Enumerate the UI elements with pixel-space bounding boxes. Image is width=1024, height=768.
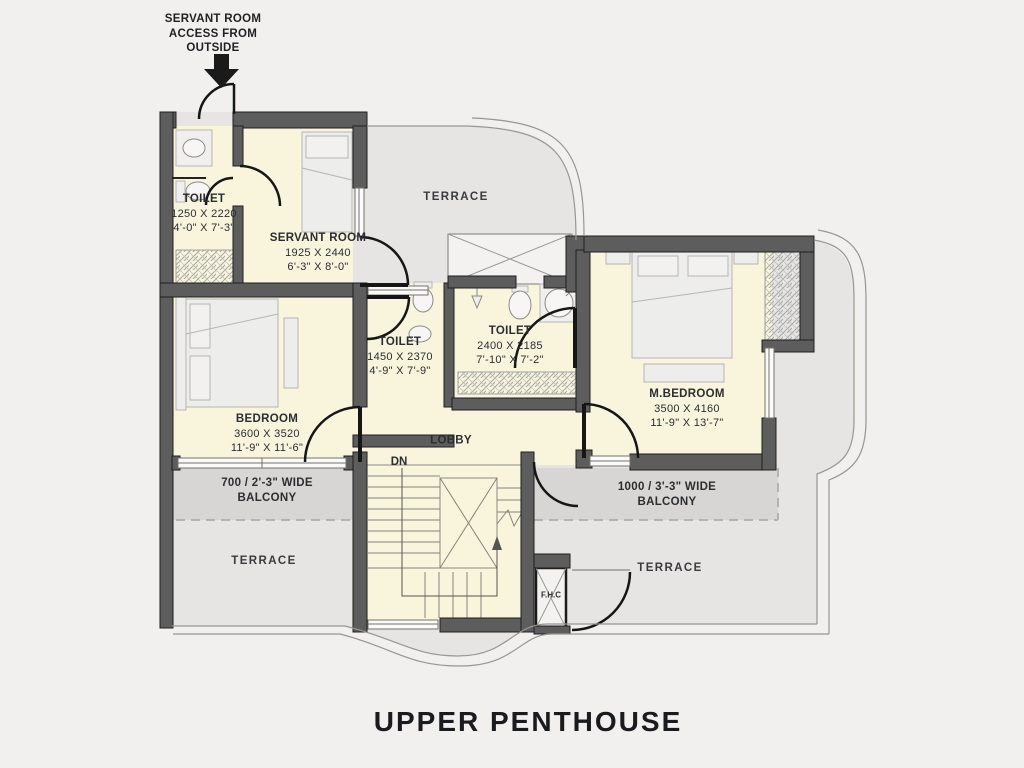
room-name: SERVANT ROOM — [270, 231, 366, 246]
room-dim-mm: 2400 X 2185 — [476, 339, 544, 353]
room-name: LOBBY — [430, 434, 472, 449]
annotation-line3: OUTSIDE — [165, 41, 261, 56]
balcony-left-label: 700 / 2'-3" WIDE BALCONY — [221, 476, 313, 506]
room-label-master-bedroom: M.BEDROOM 3500 X 4160 11'-9" X 13'-7" — [649, 387, 725, 431]
room-name: TOILET — [476, 324, 544, 339]
room-dim-mm: 3600 X 3520 — [231, 427, 303, 441]
room-dim-mm: 1450 X 2370 — [367, 350, 433, 364]
balcony-word: BALCONY — [221, 491, 313, 506]
room-name: BEDROOM — [231, 412, 303, 427]
plan-title: UPPER PENTHOUSE — [374, 706, 683, 738]
terrace-top-label: TERRACE — [423, 191, 488, 203]
room-dim-ft: 4'-9" X 7'-9" — [367, 364, 433, 378]
room-name: M.BEDROOM — [649, 387, 725, 402]
room-label-toilet-master: TOILET 2400 X 2185 7'-10" X 7'-2" — [476, 324, 544, 368]
room-name: TOILET — [367, 335, 433, 350]
terrace-bottom-right-label: TERRACE — [637, 562, 702, 574]
room-dim-mm: 3500 X 4160 — [649, 402, 725, 416]
stairs-dn-label: DN — [391, 456, 408, 468]
balcony-width: 1000 / 3'-3" WIDE — [618, 480, 716, 495]
room-label-servant-room: SERVANT ROOM 1925 X 2440 6'-3" X 8'-0" — [270, 231, 366, 275]
room-dim-ft: 6'-3" X 8'-0" — [270, 260, 366, 274]
room-label-toilet-servant: TOILET 1250 X 2220 4'-0" X 7'-3" — [171, 192, 237, 236]
room-name: TOILET — [171, 192, 237, 207]
balcony-right-label: 1000 / 3'-3" WIDE BALCONY — [618, 480, 716, 510]
fhc-label: F.H.C — [541, 591, 561, 600]
room-dim-ft: 4'-0" X 7'-3" — [171, 221, 237, 235]
annotation-line1: SERVANT ROOM — [165, 12, 261, 27]
room-dim-mm: 1250 X 2220 — [171, 207, 237, 221]
floor-plan-drawing — [0, 0, 1024, 768]
floor-plan-page: SERVANT ROOM ACCESS FROM OUTSIDE TOILET … — [0, 0, 1024, 768]
room-label-lobby: LOBBY — [430, 434, 472, 449]
annotation-line2: ACCESS FROM — [165, 27, 261, 42]
balcony-word: BALCONY — [618, 495, 716, 510]
terrace-bottom-left-label: TERRACE — [231, 555, 296, 567]
room-label-bedroom: BEDROOM 3600 X 3520 11'-9" X 11'-6" — [231, 412, 303, 456]
room-dim-ft: 7'-10" X 7'-2" — [476, 353, 544, 367]
room-dim-mm: 1925 X 2440 — [270, 246, 366, 260]
room-label-toilet-common: TOILET 1450 X 2370 4'-9" X 7'-9" — [367, 335, 433, 379]
room-dim-ft: 11'-9" X 13'-7" — [649, 416, 725, 430]
servant-access-annotation: SERVANT ROOM ACCESS FROM OUTSIDE — [165, 12, 261, 56]
room-dim-ft: 11'-9" X 11'-6" — [231, 441, 303, 455]
balcony-width: 700 / 2'-3" WIDE — [221, 476, 313, 491]
